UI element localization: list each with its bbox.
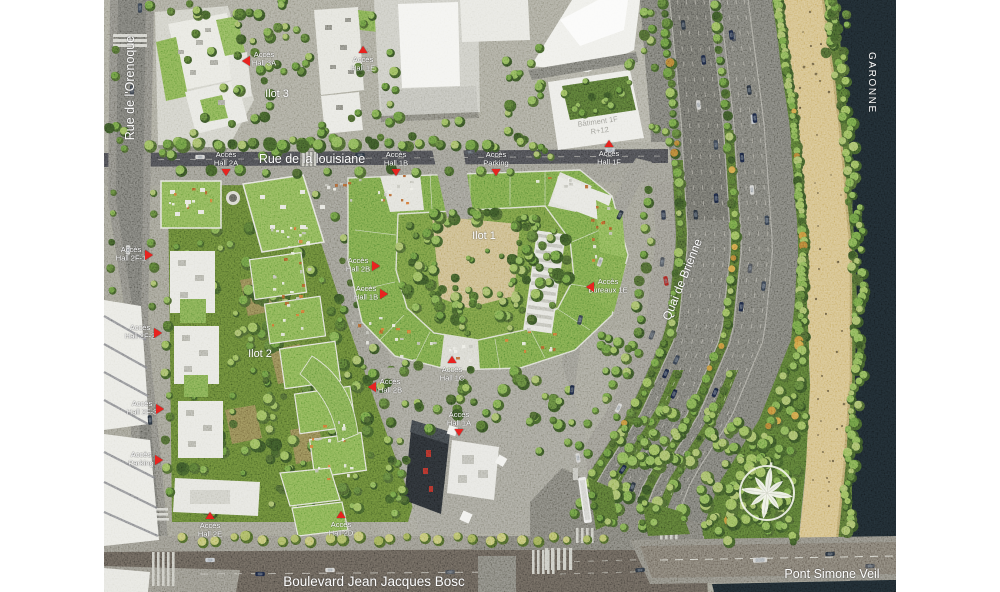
svg-text:Rue de l'Orenoque: Rue de l'Orenoque: [123, 36, 137, 141]
svg-text:AccèsHall 1C: AccèsHall 1C: [440, 365, 465, 383]
svg-text:Ilot 1: Ilot 1: [472, 230, 496, 242]
svg-text:AccèsHall 1B: AccèsHall 1B: [354, 284, 378, 302]
svg-text:AccèsHall 2E: AccèsHall 2E: [198, 521, 222, 539]
svg-text:AccèsHall 1F: AccèsHall 1F: [597, 149, 621, 167]
svg-text:AccèsHall 1A: AccèsHall 1A: [447, 410, 471, 428]
svg-text:Rue de la louisiane: Rue de la louisiane: [259, 152, 365, 166]
svg-text:Boulevard Jean Jacques Bosc: Boulevard Jean Jacques Bosc: [283, 574, 465, 589]
svg-text:AccèsHall 2B: AccèsHall 2B: [378, 377, 402, 395]
svg-text:AccèsParking: AccèsParking: [128, 450, 153, 468]
svg-text:GARONNE: GARONNE: [866, 52, 877, 114]
svg-text:Ilot 2: Ilot 2: [248, 348, 272, 360]
svg-text:AccèsHall 2B: AccèsHall 2B: [346, 256, 370, 274]
svg-text:AccèsHall 1E: AccèsHall 1E: [351, 55, 375, 73]
svg-text:AccèsHall 2A: AccèsHall 2A: [214, 150, 238, 168]
svg-text:Pont Simone Veil: Pont Simone Veil: [784, 567, 879, 581]
svg-text:AccèsHall 3A: AccèsHall 3A: [252, 50, 276, 68]
svg-text:AccèsHall 2D: AccèsHall 2D: [329, 520, 354, 538]
svg-text:Ilot 3: Ilot 3: [265, 88, 289, 100]
svg-text:AccèsHall 1B: AccèsHall 1B: [384, 150, 408, 168]
svg-text:AccèsParking: AccèsParking: [483, 150, 508, 168]
